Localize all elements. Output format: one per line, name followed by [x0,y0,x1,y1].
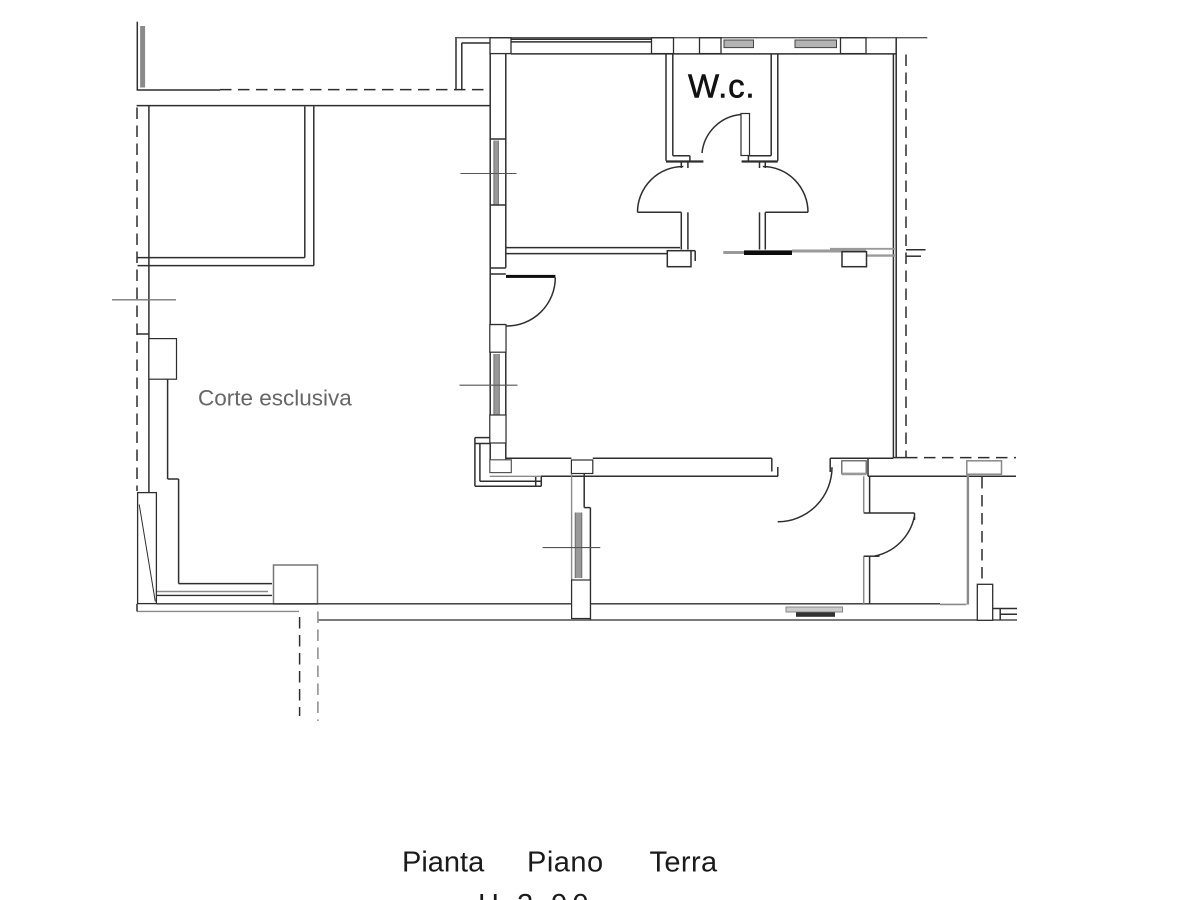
svg-text:Terra: Terra [650,847,719,879]
svg-text:W.c.: W.c. [688,68,755,105]
svg-text:Piano: Piano [527,847,604,879]
svg-text:H 2.90: H 2.90 [478,889,593,900]
svg-text:Pianta: Pianta [402,847,485,879]
svg-text:Corte esclusiva: Corte esclusiva [198,386,352,411]
